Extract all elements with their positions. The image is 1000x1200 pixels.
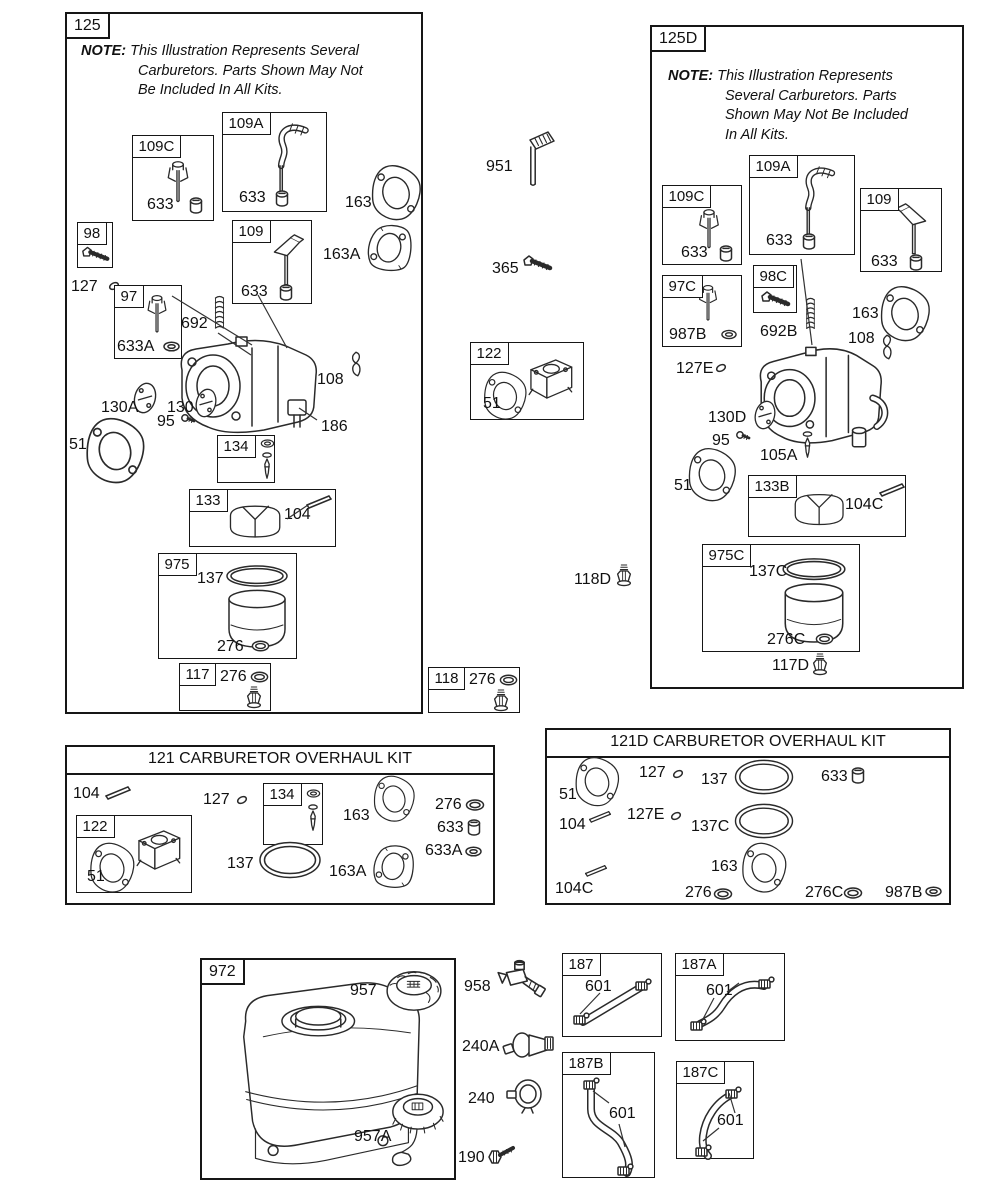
part-label-163: 163: [852, 305, 879, 323]
group-box-109A: 109A 633: [749, 155, 855, 255]
fuel-cap-drawing: [384, 966, 444, 1014]
group-box-109A: 109A 633: [222, 112, 327, 212]
o-ring-icon: [713, 888, 733, 900]
part-label-117D: 117D: [772, 657, 809, 675]
part-label-137: 137: [197, 570, 224, 588]
group-tag-97: 97: [114, 285, 145, 308]
needle-valve-drawing: [306, 804, 320, 832]
hinge-pin-drawing: [583, 862, 609, 878]
note-text: This Illustration Represents Several: [130, 43, 359, 59]
needle-valve-drawing: [800, 431, 815, 459]
part-label-633: 633: [821, 768, 848, 786]
part-label-276: 276: [685, 884, 712, 902]
screw-drawing: [521, 254, 555, 274]
bushing-icon: [802, 233, 816, 250]
part-label-137C: 137C: [749, 563, 787, 581]
gasket-drawing: [83, 414, 147, 488]
bushing-icon: [467, 819, 481, 836]
breather-tube-drawing: [514, 130, 558, 192]
choke-disc-drawing: [752, 397, 778, 433]
group-tag-97C: 97C: [662, 275, 704, 298]
bushing-icon: [279, 284, 293, 301]
bushing-icon: [719, 245, 733, 262]
carburetor-body-drawing: [747, 335, 889, 455]
part-label-163A: 163A: [323, 246, 360, 264]
part-label-692: 692: [181, 315, 208, 333]
choke-disc-drawing: [193, 385, 219, 421]
o-ring-icon: [465, 799, 485, 811]
bushing-icon: [275, 190, 289, 207]
washer-icon: [465, 846, 482, 857]
part-label-633: 633: [681, 244, 708, 262]
o-ring-icon: [499, 674, 518, 686]
part-label-633A: 633A: [117, 338, 154, 356]
o-ring-icon: [714, 362, 728, 374]
note-line: NOTE: This Illustration Represents Sever…: [81, 42, 363, 62]
bowl-nut-drawing: [614, 562, 634, 588]
bowl-nut-drawing: [810, 651, 830, 677]
bowl-nut-drawing: [491, 688, 511, 712]
part-label-276: 276: [469, 671, 496, 689]
part-label-104C: 104C: [555, 880, 593, 898]
fuel-filter-drawing: [502, 1026, 556, 1064]
bolt-drawing: [486, 1141, 516, 1167]
group-tag-134: 134: [217, 435, 256, 458]
needle-valve-drawing: [260, 452, 274, 480]
group-tag-975: 975: [158, 553, 197, 576]
part-label-104: 104: [284, 506, 311, 524]
carburetor-parts-diagram-page: 125 NOTE: This Illustration Represents S…: [0, 0, 1000, 1200]
part-label-633A: 633A: [425, 842, 462, 860]
fuel-hose-drawing: [569, 970, 659, 1034]
part-label-951: 951: [486, 158, 513, 176]
hinge-pin-drawing: [103, 783, 133, 801]
washer-icon: [306, 789, 321, 798]
group-box-187: 187 601: [562, 953, 662, 1037]
part-label-276C: 276C: [767, 631, 805, 649]
float-drawing: [226, 500, 286, 544]
part-label-987B: 987B: [669, 326, 706, 344]
o-ring-icon: [671, 768, 685, 780]
group-tag-187A: 187A: [675, 953, 724, 976]
part-label-633: 633: [766, 232, 793, 250]
part-label-95: 95: [157, 413, 175, 431]
o-ring-icon: [669, 810, 683, 822]
kit-title-121D: 121D CARBURETOR OVERHAUL KIT: [547, 733, 949, 751]
group-tag-975C: 975C: [702, 544, 752, 567]
bushing-icon: [189, 197, 203, 214]
bowl-gasket-ring-drawing: [257, 839, 323, 881]
o-ring-icon: [235, 794, 249, 806]
washer-icon: [721, 329, 737, 340]
group-tag-187B: 187B: [562, 1052, 611, 1075]
part-label-633: 633: [871, 253, 898, 271]
group-tag-109: 109: [860, 188, 899, 211]
part-label-137: 137: [227, 855, 254, 873]
group-tag-972: 972: [200, 958, 245, 985]
clip-drawing: [347, 350, 365, 378]
part-label-692B: 692B: [760, 323, 797, 341]
group-box-133B: 133B 104C: [748, 475, 906, 537]
group-tag-134: 134: [263, 783, 302, 806]
part-label-276: 276: [217, 638, 244, 656]
group-tag-98C: 98C: [753, 265, 795, 288]
part-label-276: 276: [220, 668, 247, 686]
part-label-105A: 105A: [760, 447, 797, 465]
group-tag-117: 117: [179, 663, 217, 686]
o-ring-icon: [250, 671, 269, 683]
group-box-109C: 109C 633: [132, 135, 214, 221]
note-line: NOTE: This Illustration Represents: [668, 67, 908, 87]
group-box-98: 98: [77, 222, 113, 268]
group-box-97C: 97C 987B: [662, 275, 742, 347]
note-text: This Illustration Represents: [717, 68, 893, 84]
note-head: NOTE:: [81, 43, 126, 59]
gasket-drawing: [686, 445, 738, 505]
fuel-cap-tether-drawing: [388, 1090, 446, 1172]
group-tag-109A: 109A: [222, 112, 271, 135]
group-box-98C: 98C: [753, 265, 797, 313]
group-tag-109C: 109C: [132, 135, 182, 158]
note-text: Shown May Not Be Included: [725, 106, 908, 126]
group-tag-98: 98: [77, 222, 108, 245]
bowl-nut-drawing: [244, 685, 264, 709]
fuel-hose-drawing: [571, 1075, 651, 1175]
kit-title-121: 121 CARBURETOR OVERHAUL KIT: [67, 750, 493, 768]
gasket-drawing: [739, 842, 789, 894]
gasket-drawing: [369, 775, 419, 823]
o-ring-icon: [251, 640, 270, 652]
note-text: Carburetors. Parts Shown May Not: [138, 62, 363, 82]
part-label-137C: 137C: [691, 818, 729, 836]
group-box-kit-121D: 121D CARBURETOR OVERHAUL KIT 51 127 137 …: [545, 728, 951, 905]
group-tag-187C: 187C: [676, 1061, 726, 1084]
part-label-163A: 163A: [329, 863, 366, 881]
group-box-972: 972 957 957A: [200, 958, 456, 1180]
part-label-633: 633: [241, 283, 268, 301]
part-label-104C: 104C: [845, 496, 883, 514]
gasket-drawing: [369, 843, 417, 893]
kit-title-rule: [67, 773, 493, 775]
group-box-109: 109 633: [232, 220, 312, 304]
part-label-118D: 118D: [574, 571, 611, 589]
part-label-137: 137: [701, 771, 728, 789]
note-text: In All Kits.: [725, 126, 908, 146]
part-label-95: 95: [712, 432, 730, 450]
part-label-957A: 957A: [354, 1128, 391, 1146]
group-tag-133B: 133B: [748, 475, 797, 498]
spring-drawing: [213, 295, 226, 333]
part-label-104: 104: [73, 785, 100, 803]
fuel-valve-drawing: [494, 960, 546, 1004]
part-label-163: 163: [343, 807, 370, 825]
group-tag-109: 109: [232, 220, 271, 243]
part-label-365: 365: [492, 260, 519, 278]
part-label-276: 276: [435, 796, 462, 814]
group-box-109C: 109C 633: [662, 185, 742, 265]
screw-drawing: [759, 290, 793, 310]
part-label-186: 186: [321, 418, 348, 436]
gasket-drawing: [363, 222, 415, 277]
group-tag-125: 125: [65, 12, 110, 39]
part-label-601: 601: [609, 1105, 636, 1123]
part-label-163: 163: [711, 858, 738, 876]
fuel-filter-drawing: [506, 1075, 548, 1115]
group-tag-187: 187: [562, 953, 601, 976]
group-tag-118: 118: [428, 667, 466, 690]
group-box-kit-121: 121 CARBURETOR OVERHAUL KIT 104 127 134 …: [65, 745, 495, 905]
throttle-shaft-drawing: [893, 201, 931, 261]
washer-icon: [260, 439, 275, 448]
group-box-125: 125 NOTE: This Illustration Represents S…: [65, 12, 423, 714]
part-label-276C: 276C: [805, 884, 843, 902]
group-box-975: 975 137 276: [158, 553, 297, 659]
part-label-601: 601: [717, 1112, 744, 1130]
group-box-122: 122 51: [76, 815, 192, 893]
part-label-633: 633: [239, 189, 266, 207]
part-label-127E: 127E: [627, 806, 664, 824]
group-tag-122: 122: [76, 815, 115, 838]
group-tag-133: 133: [189, 489, 228, 512]
part-label-601: 601: [706, 982, 733, 1000]
part-label-190: 190: [458, 1149, 485, 1167]
part-label-130D: 130D: [708, 409, 746, 427]
part-label-163: 163: [345, 194, 372, 212]
hinge-pin-drawing: [587, 808, 613, 824]
part-label-240A: 240A: [462, 1038, 499, 1056]
small-screw-icon: [736, 430, 751, 442]
part-label-51: 51: [69, 436, 87, 454]
part-label-633: 633: [147, 196, 174, 214]
group-box-133: 133 104: [189, 489, 336, 547]
screw-drawing: [80, 245, 112, 265]
part-label-601: 601: [585, 978, 612, 996]
note-125D: NOTE: This Illustration Represents Sever…: [668, 67, 908, 145]
part-label-51: 51: [483, 395, 501, 413]
bushing-icon: [909, 254, 923, 271]
part-label-957: 957: [350, 982, 377, 1000]
gasket-drawing: [369, 164, 423, 222]
group-box-975C: 975C 137C 276C: [702, 544, 860, 652]
part-label-127: 127: [203, 791, 230, 809]
group-tag-125D: 125D: [650, 25, 706, 52]
bushing-icon: [851, 767, 865, 784]
washer-icon: [925, 886, 942, 897]
group-box-117: 117 276: [179, 663, 271, 711]
group-box-109: 109 633: [860, 188, 942, 272]
o-ring-icon: [843, 887, 863, 899]
note-text: Several Carburetors. Parts: [725, 87, 908, 107]
note-head: NOTE:: [668, 68, 713, 84]
throttle-shaft-drawing: [269, 233, 307, 291]
part-label-987B: 987B: [885, 884, 922, 902]
gasket-drawing: [573, 754, 621, 810]
group-box-125D: 125D NOTE: This Illustration Represents …: [650, 25, 964, 689]
part-label-51: 51: [674, 477, 692, 495]
group-box-134: 134: [263, 783, 323, 845]
o-ring-icon: [815, 633, 834, 645]
part-label-127: 127: [71, 278, 98, 296]
group-box-187B: 187B 601: [562, 1052, 655, 1178]
group-box-118: 118 276: [428, 667, 520, 713]
part-label-108: 108: [317, 371, 344, 389]
part-label-130A: 130A: [101, 399, 138, 417]
note-text: Be Included In All Kits.: [138, 81, 363, 101]
part-label-104: 104: [559, 816, 586, 834]
bowl-gasket-ring-drawing: [731, 802, 797, 840]
part-label-51: 51: [559, 786, 577, 804]
group-box-187C: 187C 601: [676, 1061, 754, 1159]
group-tag-122: 122: [470, 342, 509, 365]
part-label-958: 958: [464, 978, 491, 996]
part-label-51: 51: [87, 868, 105, 886]
group-tag-109A: 109A: [749, 155, 798, 178]
carburetor-body-drawing: [165, 330, 327, 442]
spring-drawing: [804, 297, 817, 333]
part-label-633: 633: [437, 819, 464, 837]
part-label-127E: 127E: [676, 360, 713, 378]
part-label-127: 127: [639, 764, 666, 782]
part-label-240: 240: [468, 1090, 495, 1108]
group-box-122: 122 51: [470, 342, 584, 420]
part-label-108: 108: [848, 330, 875, 348]
group-box-187A: 187A 601: [675, 953, 785, 1041]
group-box-134: 134: [217, 435, 275, 483]
note-125: NOTE: This Illustration Represents Sever…: [81, 42, 363, 101]
bowl-gasket-ring-drawing: [731, 758, 797, 796]
float-drawing: [791, 488, 849, 532]
group-tag-109C: 109C: [662, 185, 712, 208]
